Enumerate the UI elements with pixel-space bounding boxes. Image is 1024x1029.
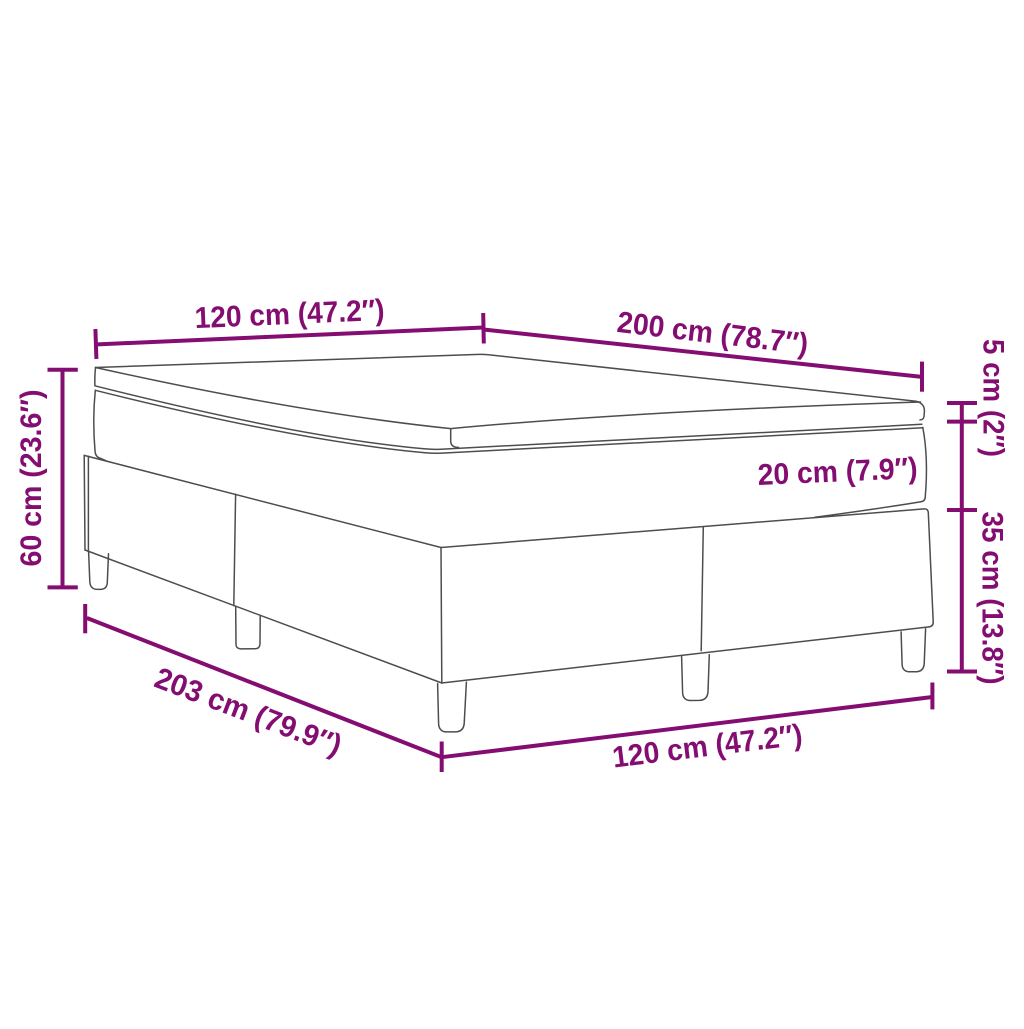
svg-text:35 cm (13.8″): 35 cm (13.8″)	[976, 512, 1009, 685]
svg-text:60 cm (23.6″): 60 cm (23.6″)	[15, 390, 48, 567]
svg-text:5 cm (2″): 5 cm (2″)	[977, 339, 1010, 457]
svg-text:20 cm (7.9″): 20 cm (7.9″)	[757, 452, 918, 492]
